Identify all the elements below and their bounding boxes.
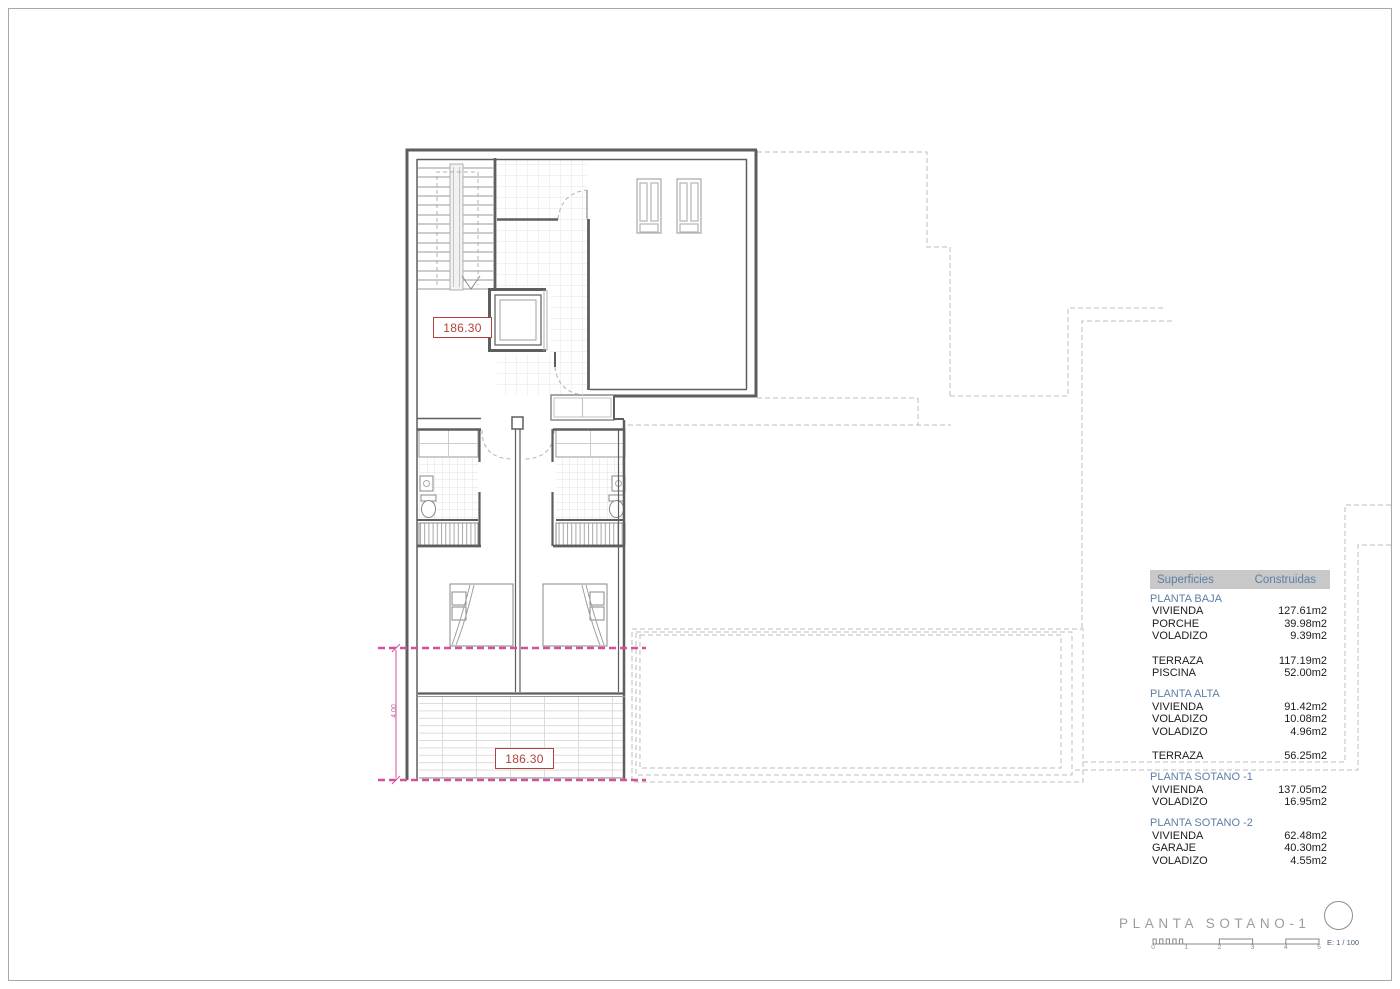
table-section: TERRAZA117.19m2PISCINA52.00m2	[1150, 655, 1330, 680]
sink-left	[420, 476, 433, 491]
table-row: VOLADIZO10.08m2	[1150, 713, 1330, 725]
table-section-title: PLANTA SOTANO -1	[1150, 771, 1330, 783]
row-label: VOLADIZO	[1152, 630, 1208, 642]
row-value: 56.25m2	[1284, 750, 1327, 762]
row-value: 117.19m2	[1279, 655, 1327, 667]
table-section-title: PLANTA ALTA	[1150, 688, 1330, 700]
scale-tick-labels: 012345	[1148, 944, 1328, 954]
header-col-construidas: Construidas	[1255, 574, 1316, 586]
drawing-sheet: 186.30 186.30 4.00 Superficies Construid…	[0, 0, 1400, 989]
title-circle	[1324, 901, 1353, 930]
scale-ratio-label: E: 1 / 100	[1327, 938, 1359, 947]
row-value: 39.98m2	[1284, 618, 1327, 630]
row-label: VIVIENDA	[1152, 701, 1203, 713]
table-row: PISCINA52.00m2	[1150, 667, 1330, 679]
table-section: PLANTA SOTANO -1VIVIENDA137.05m2VOLADIZO…	[1150, 771, 1330, 808]
surfaces-table-body: PLANTA BAJAVIVIENDA127.61m2PORCHE39.98m2…	[1150, 593, 1330, 867]
table-row: VOLADIZO4.55m2	[1150, 855, 1330, 867]
scale-tick-label: 1	[1184, 944, 1188, 951]
row-label: PISCINA	[1152, 667, 1196, 679]
row-value: 40.30m2	[1284, 842, 1327, 854]
table-section: PLANTA ALTAVIVIENDA91.42m2VOLADIZO10.08m…	[1150, 688, 1330, 738]
row-label: VOLADIZO	[1152, 726, 1208, 738]
table-row: VIVIENDA62.48m2	[1150, 830, 1330, 842]
toilet-left	[422, 501, 436, 518]
row-label: GARAJE	[1152, 842, 1196, 854]
row-label: TERRAZA	[1152, 750, 1203, 762]
row-value: 4.96m2	[1290, 726, 1327, 738]
scale-tick-label: 5	[1317, 944, 1321, 951]
table-row: VOLADIZO9.39m2	[1150, 630, 1330, 642]
row-label: VOLADIZO	[1152, 713, 1208, 725]
terrace-depth-dimension: 4.00	[391, 696, 401, 726]
row-label: VIVIENDA	[1152, 784, 1203, 796]
table-row: TERRAZA56.25m2	[1150, 750, 1330, 762]
row-value: 4.55m2	[1290, 855, 1327, 867]
table-row: PORCHE39.98m2	[1150, 618, 1330, 630]
level-label-lower: 186.30	[495, 748, 554, 769]
south-window-box	[551, 395, 614, 420]
row-value: 16.95m2	[1284, 796, 1327, 808]
row-value: 91.42m2	[1284, 701, 1327, 713]
table-section-title: PLANTA BAJA	[1150, 593, 1330, 605]
table-row: VIVIENDA137.05m2	[1150, 784, 1330, 796]
row-label: VIVIENDA	[1152, 605, 1203, 617]
scale-tick-label: 0	[1151, 944, 1155, 951]
table-row: VOLADIZO16.95m2	[1150, 796, 1330, 808]
row-label: PORCHE	[1152, 618, 1199, 630]
table-section-title: PLANTA SOTANO -2	[1150, 817, 1330, 829]
scale-tick-label: 3	[1251, 944, 1255, 951]
header-col-superficies: Superficies	[1157, 574, 1214, 586]
row-value: 52.00m2	[1284, 667, 1327, 679]
row-label: VOLADIZO	[1152, 855, 1208, 867]
row-value: 62.48m2	[1284, 830, 1327, 842]
elevator	[490, 290, 548, 352]
table-section: PLANTA SOTANO -2VIVIENDA62.48m2GARAJE40.…	[1150, 817, 1330, 867]
row-value: 10.08m2	[1284, 713, 1327, 725]
row-value: 127.61m2	[1278, 605, 1327, 617]
surfaces-table: Superficies Construidas PLANTA BAJAVIVIE…	[1150, 570, 1330, 867]
table-row: VIVIENDA91.42m2	[1150, 701, 1330, 713]
surfaces-table-header: Superficies Construidas	[1150, 570, 1330, 589]
toilet-right	[610, 501, 624, 518]
table-row: VOLADIZO4.96m2	[1150, 726, 1330, 738]
table-section: PLANTA BAJAVIVIENDA127.61m2PORCHE39.98m2…	[1150, 593, 1330, 643]
scale-tick-label: 2	[1218, 944, 1222, 951]
table-row: GARAJE40.30m2	[1150, 842, 1330, 854]
row-label: VOLADIZO	[1152, 796, 1208, 808]
row-label: VIVIENDA	[1152, 830, 1203, 842]
table-row: TERRAZA117.19m2	[1150, 655, 1330, 667]
table-section: TERRAZA56.25m2	[1150, 750, 1330, 762]
stair-railing	[450, 164, 463, 290]
row-value: 9.39m2	[1290, 630, 1327, 642]
row-value: 137.05m2	[1278, 784, 1327, 796]
scale-tick-label: 4	[1284, 944, 1288, 951]
level-label-upper: 186.30	[433, 317, 492, 338]
table-row: VIVIENDA127.61m2	[1150, 605, 1330, 617]
row-label: TERRAZA	[1152, 655, 1203, 667]
